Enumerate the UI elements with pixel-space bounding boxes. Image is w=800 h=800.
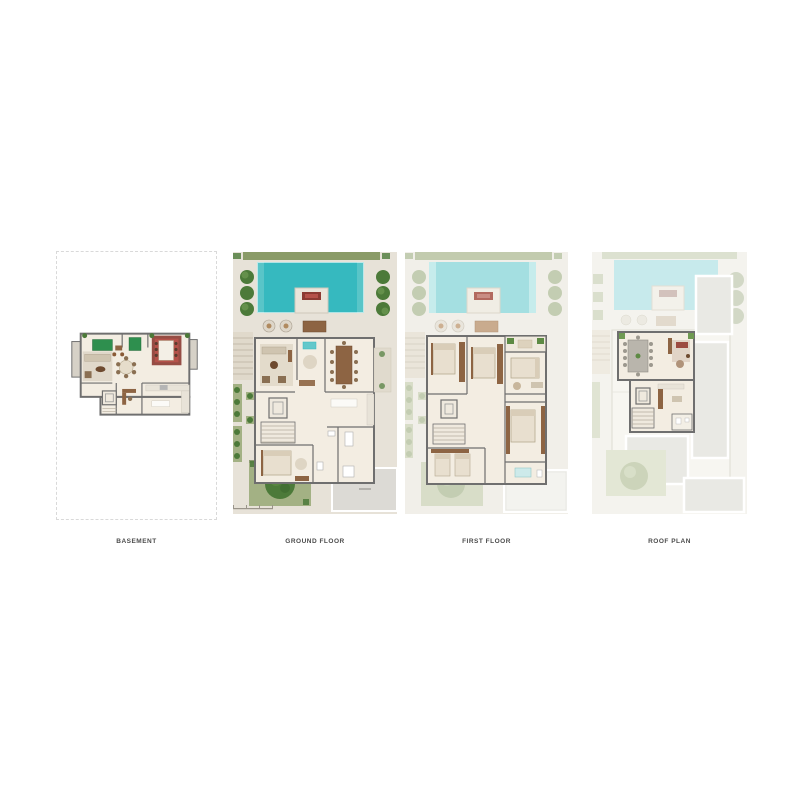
balcony xyxy=(505,336,546,352)
back-lawn-ghost xyxy=(606,450,666,496)
dining-area xyxy=(152,336,182,366)
plan-label-roof-plan: ROOF PLAN xyxy=(592,538,747,545)
stairs xyxy=(261,422,295,443)
side-terrace xyxy=(374,348,391,392)
entry-steps-ghost xyxy=(592,330,610,374)
entry-steps-faded xyxy=(405,332,425,378)
pool-below xyxy=(429,262,536,313)
floorplan-panel-basement xyxy=(56,251,217,520)
wc xyxy=(672,414,692,430)
hedge-faded xyxy=(405,252,562,260)
plan-art-basement xyxy=(57,252,216,519)
side-garden-ghost xyxy=(592,382,600,438)
elevator xyxy=(441,400,457,418)
stair-block xyxy=(630,380,694,432)
plan-label-first-floor: FIRST FLOOR xyxy=(405,538,568,545)
plan-art-roof xyxy=(592,252,747,514)
stairs xyxy=(433,424,465,444)
house xyxy=(255,338,374,483)
entry-steps xyxy=(233,332,253,380)
elevator xyxy=(102,391,116,412)
floor-plans-page: BASEMENT GROUND FLOOR FIRST FLOOR ROOF P… xyxy=(0,0,800,800)
lounge xyxy=(83,351,113,381)
basement-plan xyxy=(72,333,197,414)
floorplan-panel-roof xyxy=(592,252,747,514)
plan-label-basement: BASEMENT xyxy=(56,538,217,545)
bedroom-2 xyxy=(471,344,503,384)
billiard-table xyxy=(93,340,113,351)
living-room xyxy=(260,344,293,386)
plan-label-ground-floor: GROUND FLOOR xyxy=(233,538,397,545)
swimming-pool xyxy=(257,262,364,313)
plan-art-first-floor xyxy=(405,252,568,514)
roof-terrace xyxy=(618,332,694,380)
hedge-ghost xyxy=(602,252,737,259)
plan-art-ground-floor xyxy=(233,252,397,514)
floorplan-panel-first-floor xyxy=(405,252,568,514)
hedge xyxy=(233,252,390,260)
elevator xyxy=(269,398,287,418)
house xyxy=(427,336,546,484)
floorplan-panel-ground-floor xyxy=(233,252,397,514)
